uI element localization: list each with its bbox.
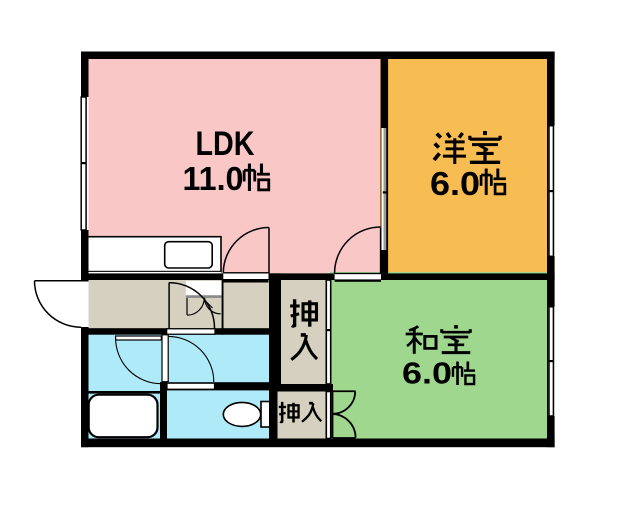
svg-text:6.0: 6.0	[430, 165, 480, 202]
svg-text:LDK: LDK	[196, 125, 255, 163]
svg-text:6.0: 6.0	[402, 356, 452, 391]
svg-text:11.0: 11.0	[183, 160, 244, 197]
